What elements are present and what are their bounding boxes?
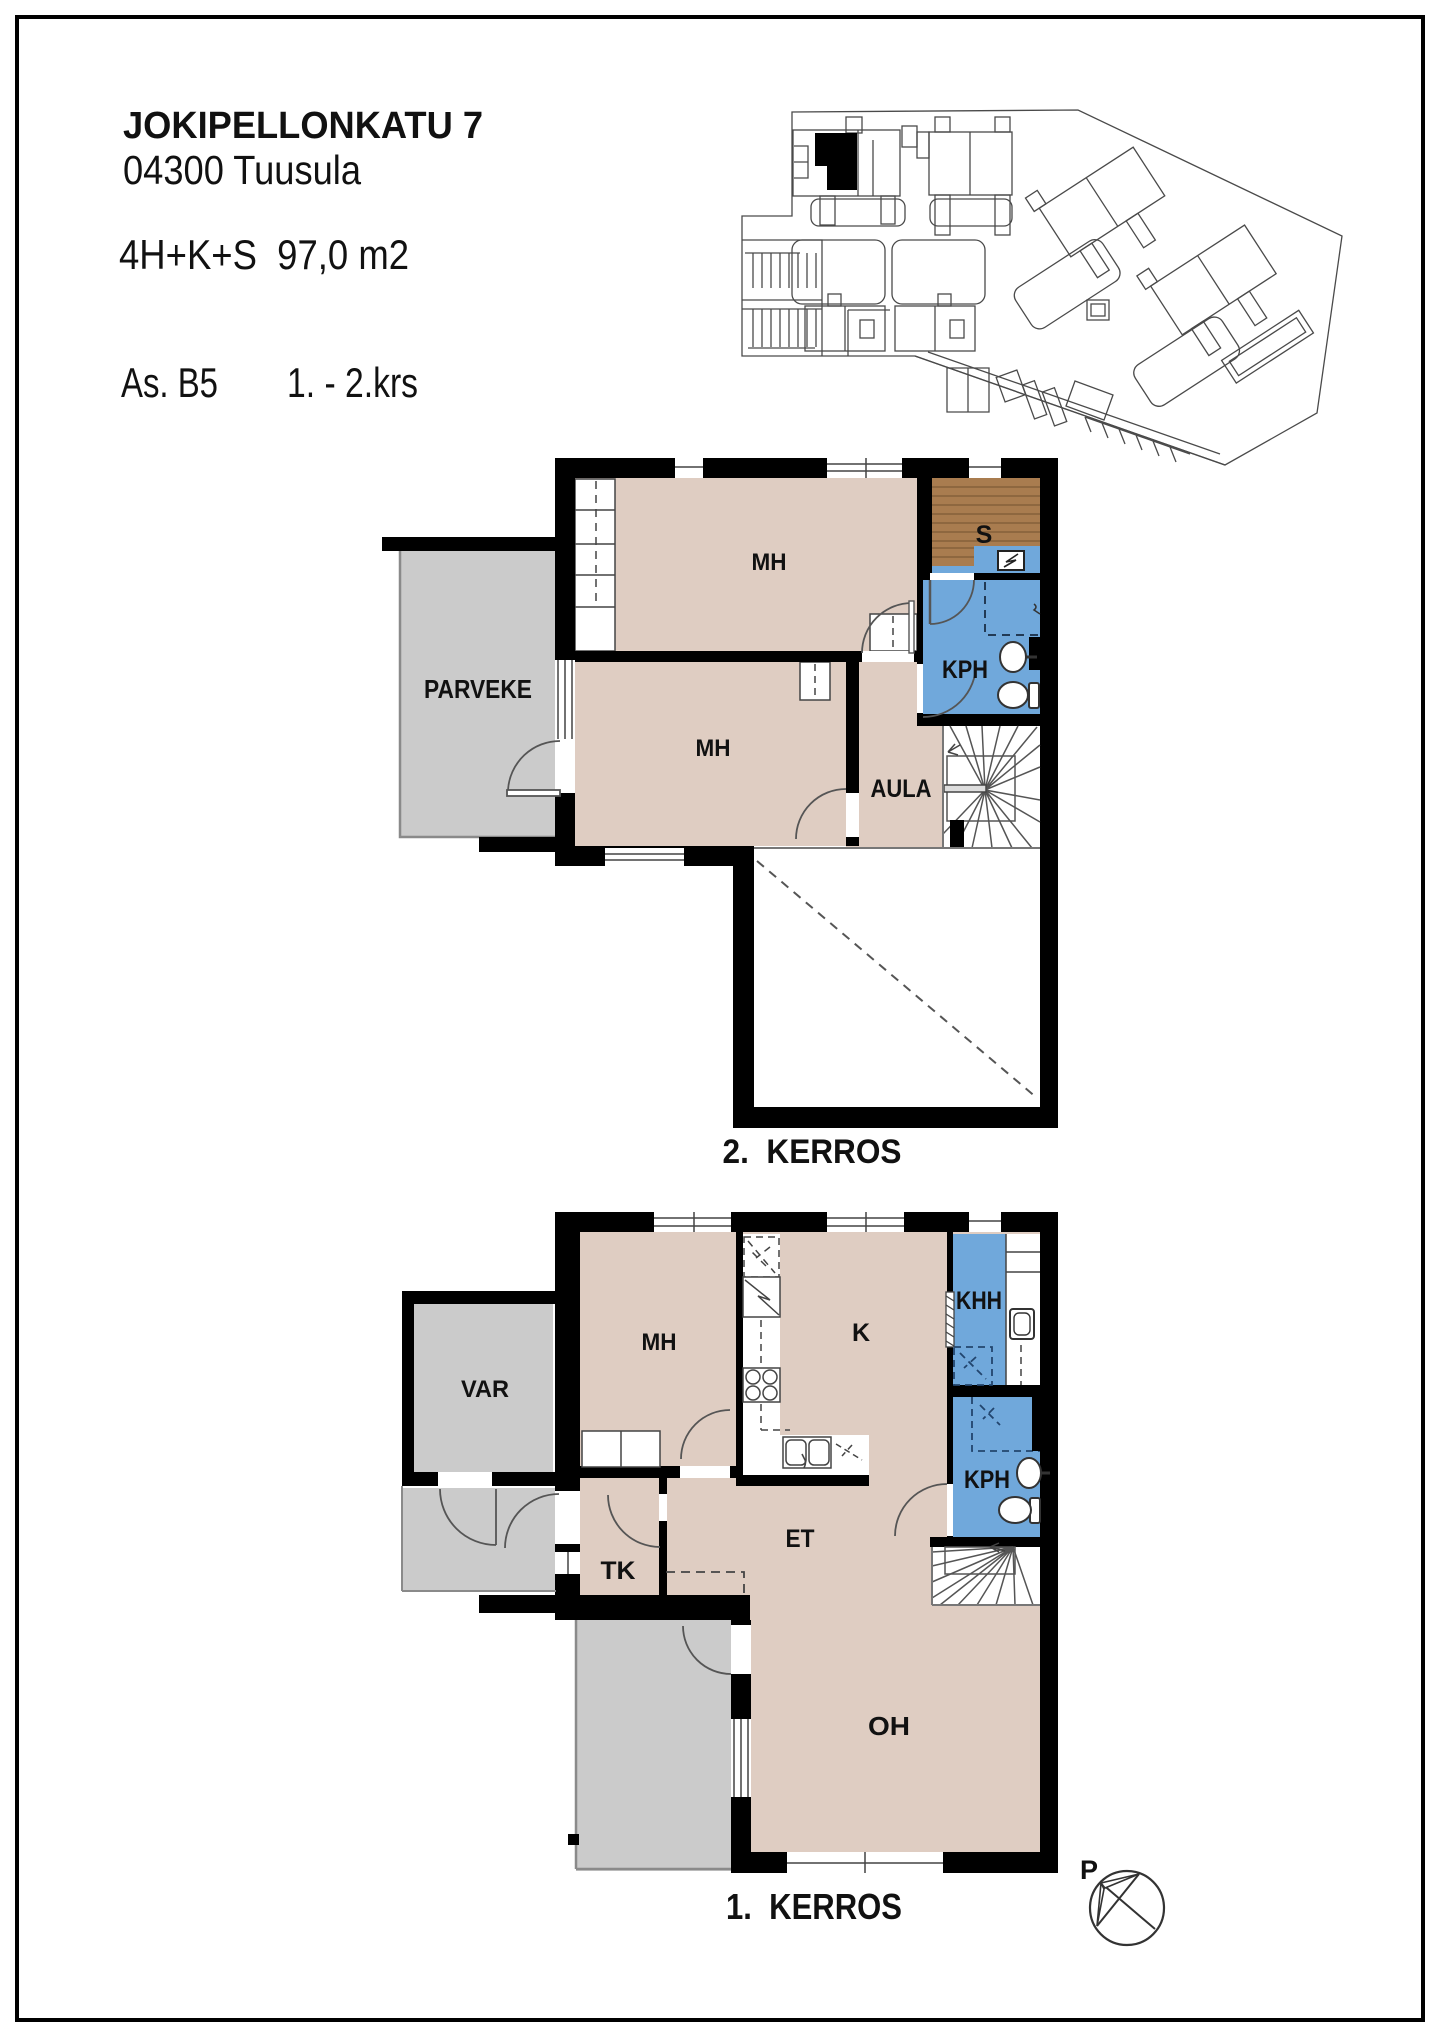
svg-text:P: P [1080,1855,1098,1885]
svg-text:AULA: AULA [871,775,932,803]
svg-text:KPH: KPH [964,1466,1010,1494]
svg-text:KHH: KHH [956,1287,1002,1315]
svg-text:MH: MH [642,1329,677,1356]
svg-text:2. KERROS: 2. KERROS [723,1133,902,1171]
svg-text:KPH: KPH [942,656,988,684]
svg-text:1. - 2.krs: 1. - 2.krs [287,359,418,406]
svg-text:K: K [852,1319,870,1347]
svg-text:VAR: VAR [461,1376,509,1403]
svg-text:TK: TK [601,1557,636,1585]
svg-text:As. B5: As. B5 [121,359,218,406]
svg-text:OH: OH [868,1711,910,1741]
svg-text:04300 Tuusula: 04300 Tuusula [123,147,361,193]
svg-text:4H+K+S 97,0 m2: 4H+K+S 97,0 m2 [119,231,409,278]
svg-text:1. KERROS: 1. KERROS [726,1886,902,1927]
svg-text:JOKIPELLONKATU 7: JOKIPELLONKATU 7 [123,105,483,147]
svg-text:ET: ET [786,1525,815,1553]
svg-text:PARVEKE: PARVEKE [424,674,532,704]
svg-text:S: S [976,521,993,549]
svg-text:MH: MH [696,735,731,762]
svg-text:MH: MH [752,549,787,576]
